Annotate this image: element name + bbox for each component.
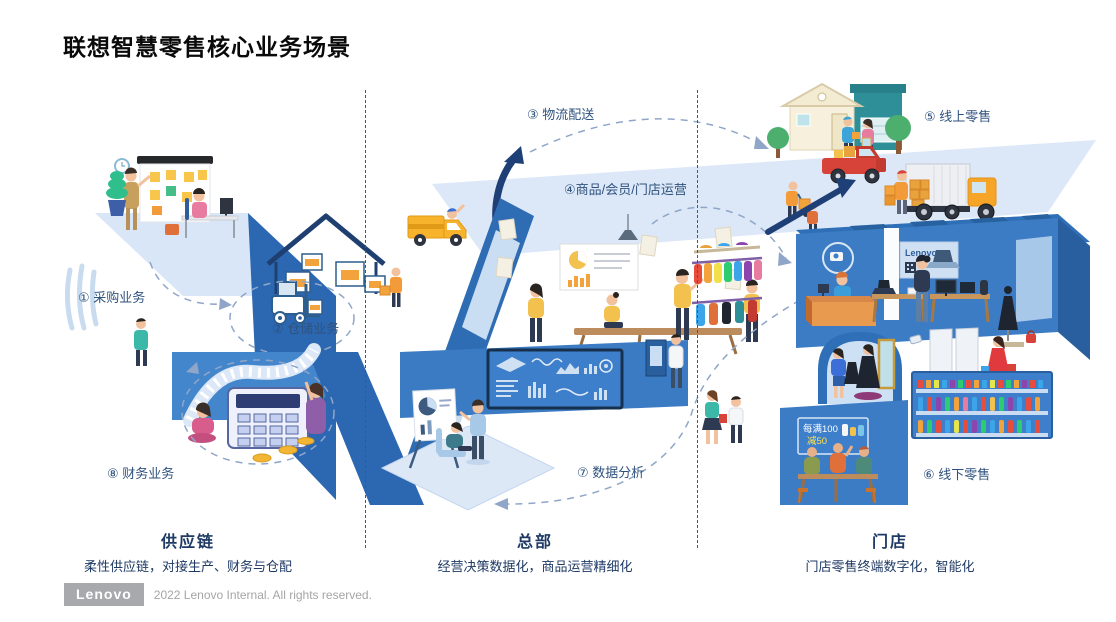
laptop-icon xyxy=(872,288,896,294)
section-supply-chain-desc: 柔性供应链，对接生产、财务与仓配 xyxy=(58,556,318,575)
label-data-analysis: ⑦ 数据分析 xyxy=(577,462,644,481)
monitor-icon xyxy=(960,282,975,293)
person-with-phone xyxy=(134,318,148,366)
warehouse-worker xyxy=(380,268,402,308)
label-warehousing: ② 仓储业务 xyxy=(272,318,339,337)
label-finance: ⑧ 财务业务 xyxy=(107,463,174,482)
mirror xyxy=(879,340,894,388)
house xyxy=(767,84,911,158)
hat-icon xyxy=(700,245,712,248)
label-procurement: ① 采购业务 xyxy=(78,287,145,306)
promo-text-line2: 减50 xyxy=(807,435,827,447)
zone-divider-left xyxy=(365,90,366,548)
beverage-shelf xyxy=(912,372,1052,438)
cafe-table xyxy=(798,474,878,479)
slide: Lenovo xyxy=(0,0,1116,622)
calculator xyxy=(228,388,308,448)
label-logistics: ③ 物流配送 xyxy=(527,104,594,123)
monitor xyxy=(220,198,233,214)
label-operations: ④商品/会员/门店运营 xyxy=(564,179,687,198)
copyright-text: 2022 Lenovo Internal. All rights reserve… xyxy=(154,588,372,602)
speaker-icon xyxy=(980,280,988,295)
store-doors xyxy=(909,328,978,377)
qr-code-icon xyxy=(905,262,916,273)
finance-scene xyxy=(172,350,424,505)
dashed-curve-logistics xyxy=(530,119,762,152)
sales-assistant xyxy=(831,359,846,376)
delivery-van-yellow xyxy=(408,205,466,246)
section-headquarters-desc: 经营决策数据化，商品运营精细化 xyxy=(405,556,665,575)
walking-shoppers xyxy=(702,390,743,444)
store-zone: Lenovo xyxy=(780,214,1090,505)
label-offline-retail: ⑥ 线下零售 xyxy=(923,464,990,483)
section-supply-chain: 供应链 柔性供应链，对接生产、财务与仓配 xyxy=(58,528,318,575)
plant xyxy=(106,171,128,216)
section-supply-chain-name: 供应链 xyxy=(58,528,318,552)
section-store-name: 门店 xyxy=(760,528,1020,552)
laptop-icon xyxy=(933,250,953,262)
lenovo-logo: Lenovo xyxy=(64,583,144,606)
fitting-room xyxy=(818,332,902,404)
section-headquarters-name: 总部 xyxy=(405,528,665,552)
handbag-icon xyxy=(1026,334,1036,343)
pillar xyxy=(884,228,899,320)
promo-text-line1: 每满100 xyxy=(803,423,838,435)
hat-icon xyxy=(736,242,748,245)
label-online-retail: ⑤ 线上零售 xyxy=(924,106,991,125)
shopping-bag-icon xyxy=(719,414,727,423)
person-at-desk xyxy=(192,202,207,218)
flipchart xyxy=(413,389,458,441)
zone-divider-right xyxy=(697,90,698,548)
section-headquarters: 总部 经营决策数据化，商品运营精细化 xyxy=(405,528,665,575)
page-title: 联想智慧零售核心业务场景 xyxy=(63,28,351,62)
section-store-desc: 门店零售终端数字化，智能化 xyxy=(760,556,1020,575)
cashier-desk xyxy=(812,302,876,326)
person-standing xyxy=(306,382,326,434)
meeting-table xyxy=(574,328,742,335)
footer: Lenovo 2022 Lenovo Internal. All rights … xyxy=(64,583,372,606)
briefcase xyxy=(165,224,179,235)
rug xyxy=(854,392,882,400)
monitor-icon xyxy=(936,280,956,293)
boxes xyxy=(286,254,385,292)
section-store: 门店 门店零售终端数字化，智能化 xyxy=(760,528,1020,575)
